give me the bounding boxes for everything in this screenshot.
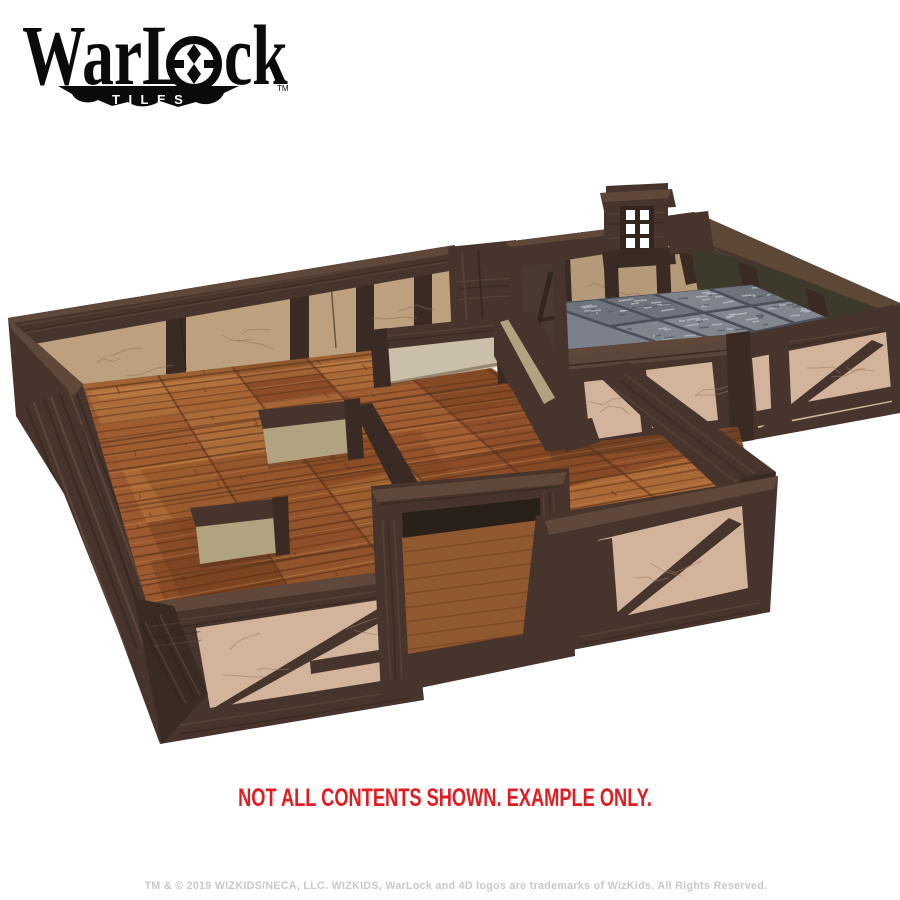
svg-text:TILES: TILES bbox=[112, 92, 191, 107]
svg-text:TM & © 2019 WIZKIDS/NECA, LLC.: TM & © 2019 WIZKIDS/NECA, LLC. WIZKIDS, … bbox=[145, 880, 768, 892]
svg-text:TM: TM bbox=[277, 84, 289, 93]
svg-text:NOT ALL CONTENTS SHOWN. EXAMPL: NOT ALL CONTENTS SHOWN. EXAMPLE ONLY. bbox=[238, 783, 652, 812]
